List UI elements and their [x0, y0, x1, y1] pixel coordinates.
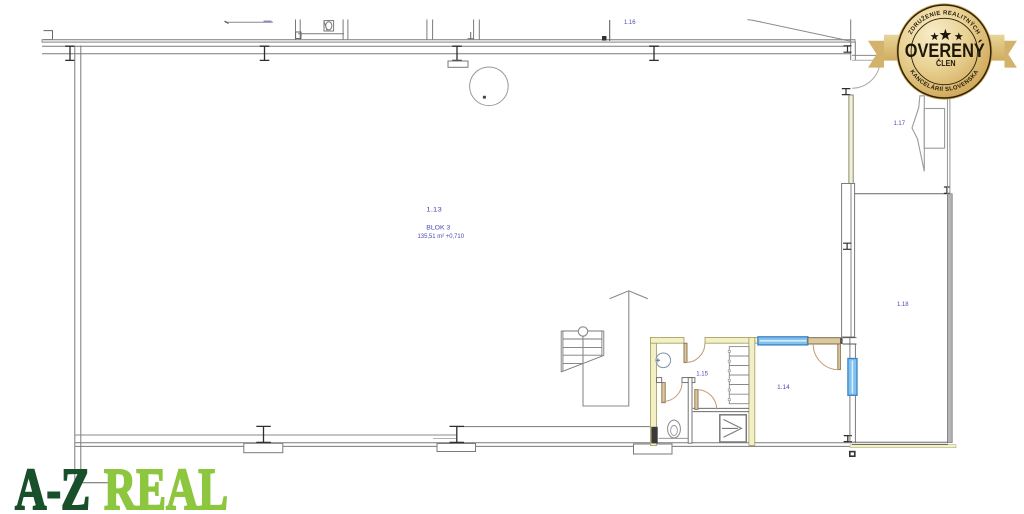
svg-text:ČLEN: ČLEN	[936, 59, 956, 68]
svg-text:REAL: REAL	[104, 456, 228, 514]
svg-text:1.16: 1.16	[624, 20, 636, 26]
svg-text:A-Z: A-Z	[15, 456, 90, 514]
svg-text:1.15: 1.15	[696, 371, 708, 377]
svg-text:1.14: 1.14	[777, 385, 790, 391]
svg-text:135,51 m² +0,710: 135,51 m² +0,710	[418, 234, 465, 240]
svg-text:1.13: 1.13	[426, 208, 442, 214]
svg-text:BLOK 3: BLOK 3	[426, 226, 451, 232]
svg-text:1.18: 1.18	[897, 302, 909, 308]
svg-text:1.17: 1.17	[894, 121, 906, 127]
